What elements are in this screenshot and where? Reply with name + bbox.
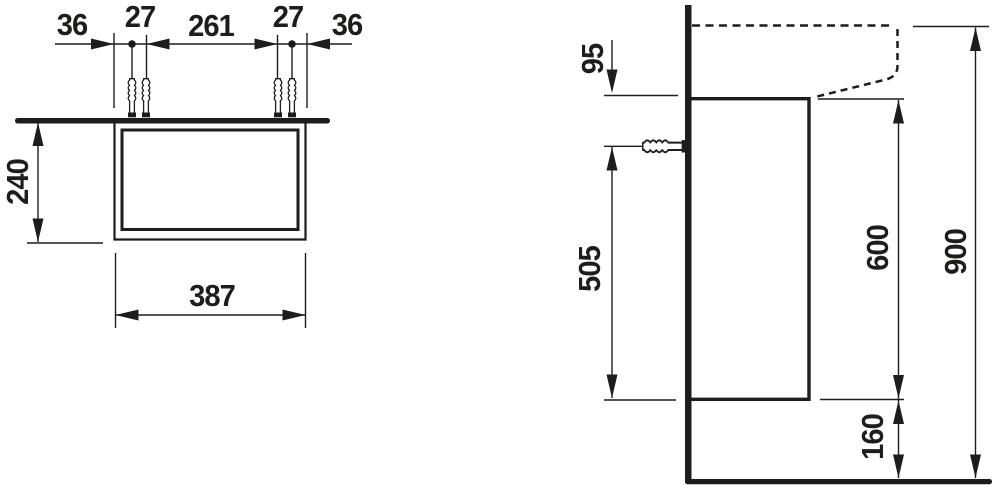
dim-arrow	[147, 39, 170, 50]
dim-arrow	[283, 310, 306, 321]
wall-plug-icon	[128, 79, 136, 117]
dim-label-160: 160	[859, 399, 885, 474]
dim-arrow	[893, 375, 904, 399]
wall-plug-icon	[288, 79, 296, 117]
dim-arrow	[33, 123, 44, 147]
dim-label-505: 505	[576, 231, 602, 306]
wall-plug-icon	[274, 79, 282, 117]
dim-label-36-left: 36	[44, 11, 100, 37]
washbasin-top-front	[15, 118, 330, 124]
dim-arrow	[970, 455, 981, 479]
technical-drawing: 36 27 261 27 36 240 387 95 505 600 160 9…	[0, 0, 1000, 485]
dim-label-261: 261	[173, 12, 248, 38]
wall	[685, 5, 692, 482]
cabinet-inner-outline	[122, 130, 298, 230]
dim-arrow	[970, 28, 981, 52]
dim-arrow	[307, 39, 330, 50]
dim-arrow	[116, 310, 139, 321]
cabinet-side-outline	[692, 99, 810, 400]
dim-label-27-left: 27	[112, 3, 168, 29]
dim-arrow	[893, 455, 904, 479]
side-view	[604, 5, 992, 484]
dim-arrow	[893, 401, 904, 425]
drawing-linework	[0, 0, 1000, 485]
dim-arrow	[607, 147, 618, 171]
wall-plug-side-icon	[643, 140, 687, 152]
dim-label-27-right: 27	[260, 3, 316, 29]
dim-arrow	[33, 219, 44, 243]
dim-label-36-right: 36	[319, 11, 375, 37]
floor	[685, 479, 992, 484]
dim-label-600: 600	[864, 210, 890, 285]
dim-arrow	[91, 39, 114, 50]
wall-plug-icon	[142, 79, 150, 117]
dim-label-95: 95	[579, 31, 605, 87]
dim-label-900: 900	[942, 214, 968, 289]
dim-arrow	[893, 100, 904, 124]
dim-arrow	[607, 375, 618, 399]
drill-centre-dot	[288, 40, 296, 48]
drill-centre-dot	[128, 40, 136, 48]
dim-arrow	[255, 39, 278, 50]
cabinet-outer-outline	[115, 123, 306, 240]
dim-label-387: 387	[174, 282, 249, 308]
dim-label-240: 240	[4, 144, 30, 219]
washbasin-dashed-outline	[813, 29, 898, 98]
